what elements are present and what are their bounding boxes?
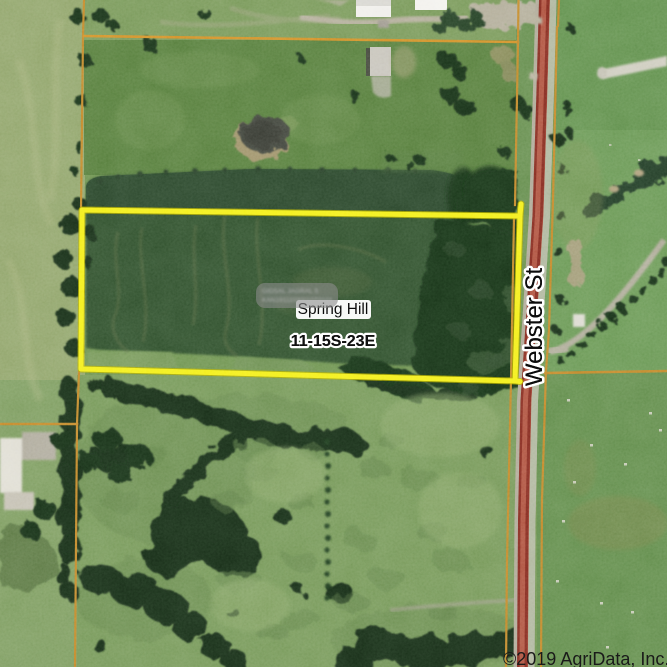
svg-text:GIDSAL JAGRAL S: GIDSAL JAGRAL S: [262, 288, 319, 295]
svg-text:Webster St: Webster St: [521, 268, 548, 387]
svg-text:11-15S-23E: 11-15S-23E: [291, 333, 376, 350]
svg-text:©2019 AgriData, Inc.: ©2019 AgriData, Inc.: [503, 649, 667, 667]
svg-text:KAN19111030010T0101: KAN19111030010T0101: [262, 297, 333, 304]
